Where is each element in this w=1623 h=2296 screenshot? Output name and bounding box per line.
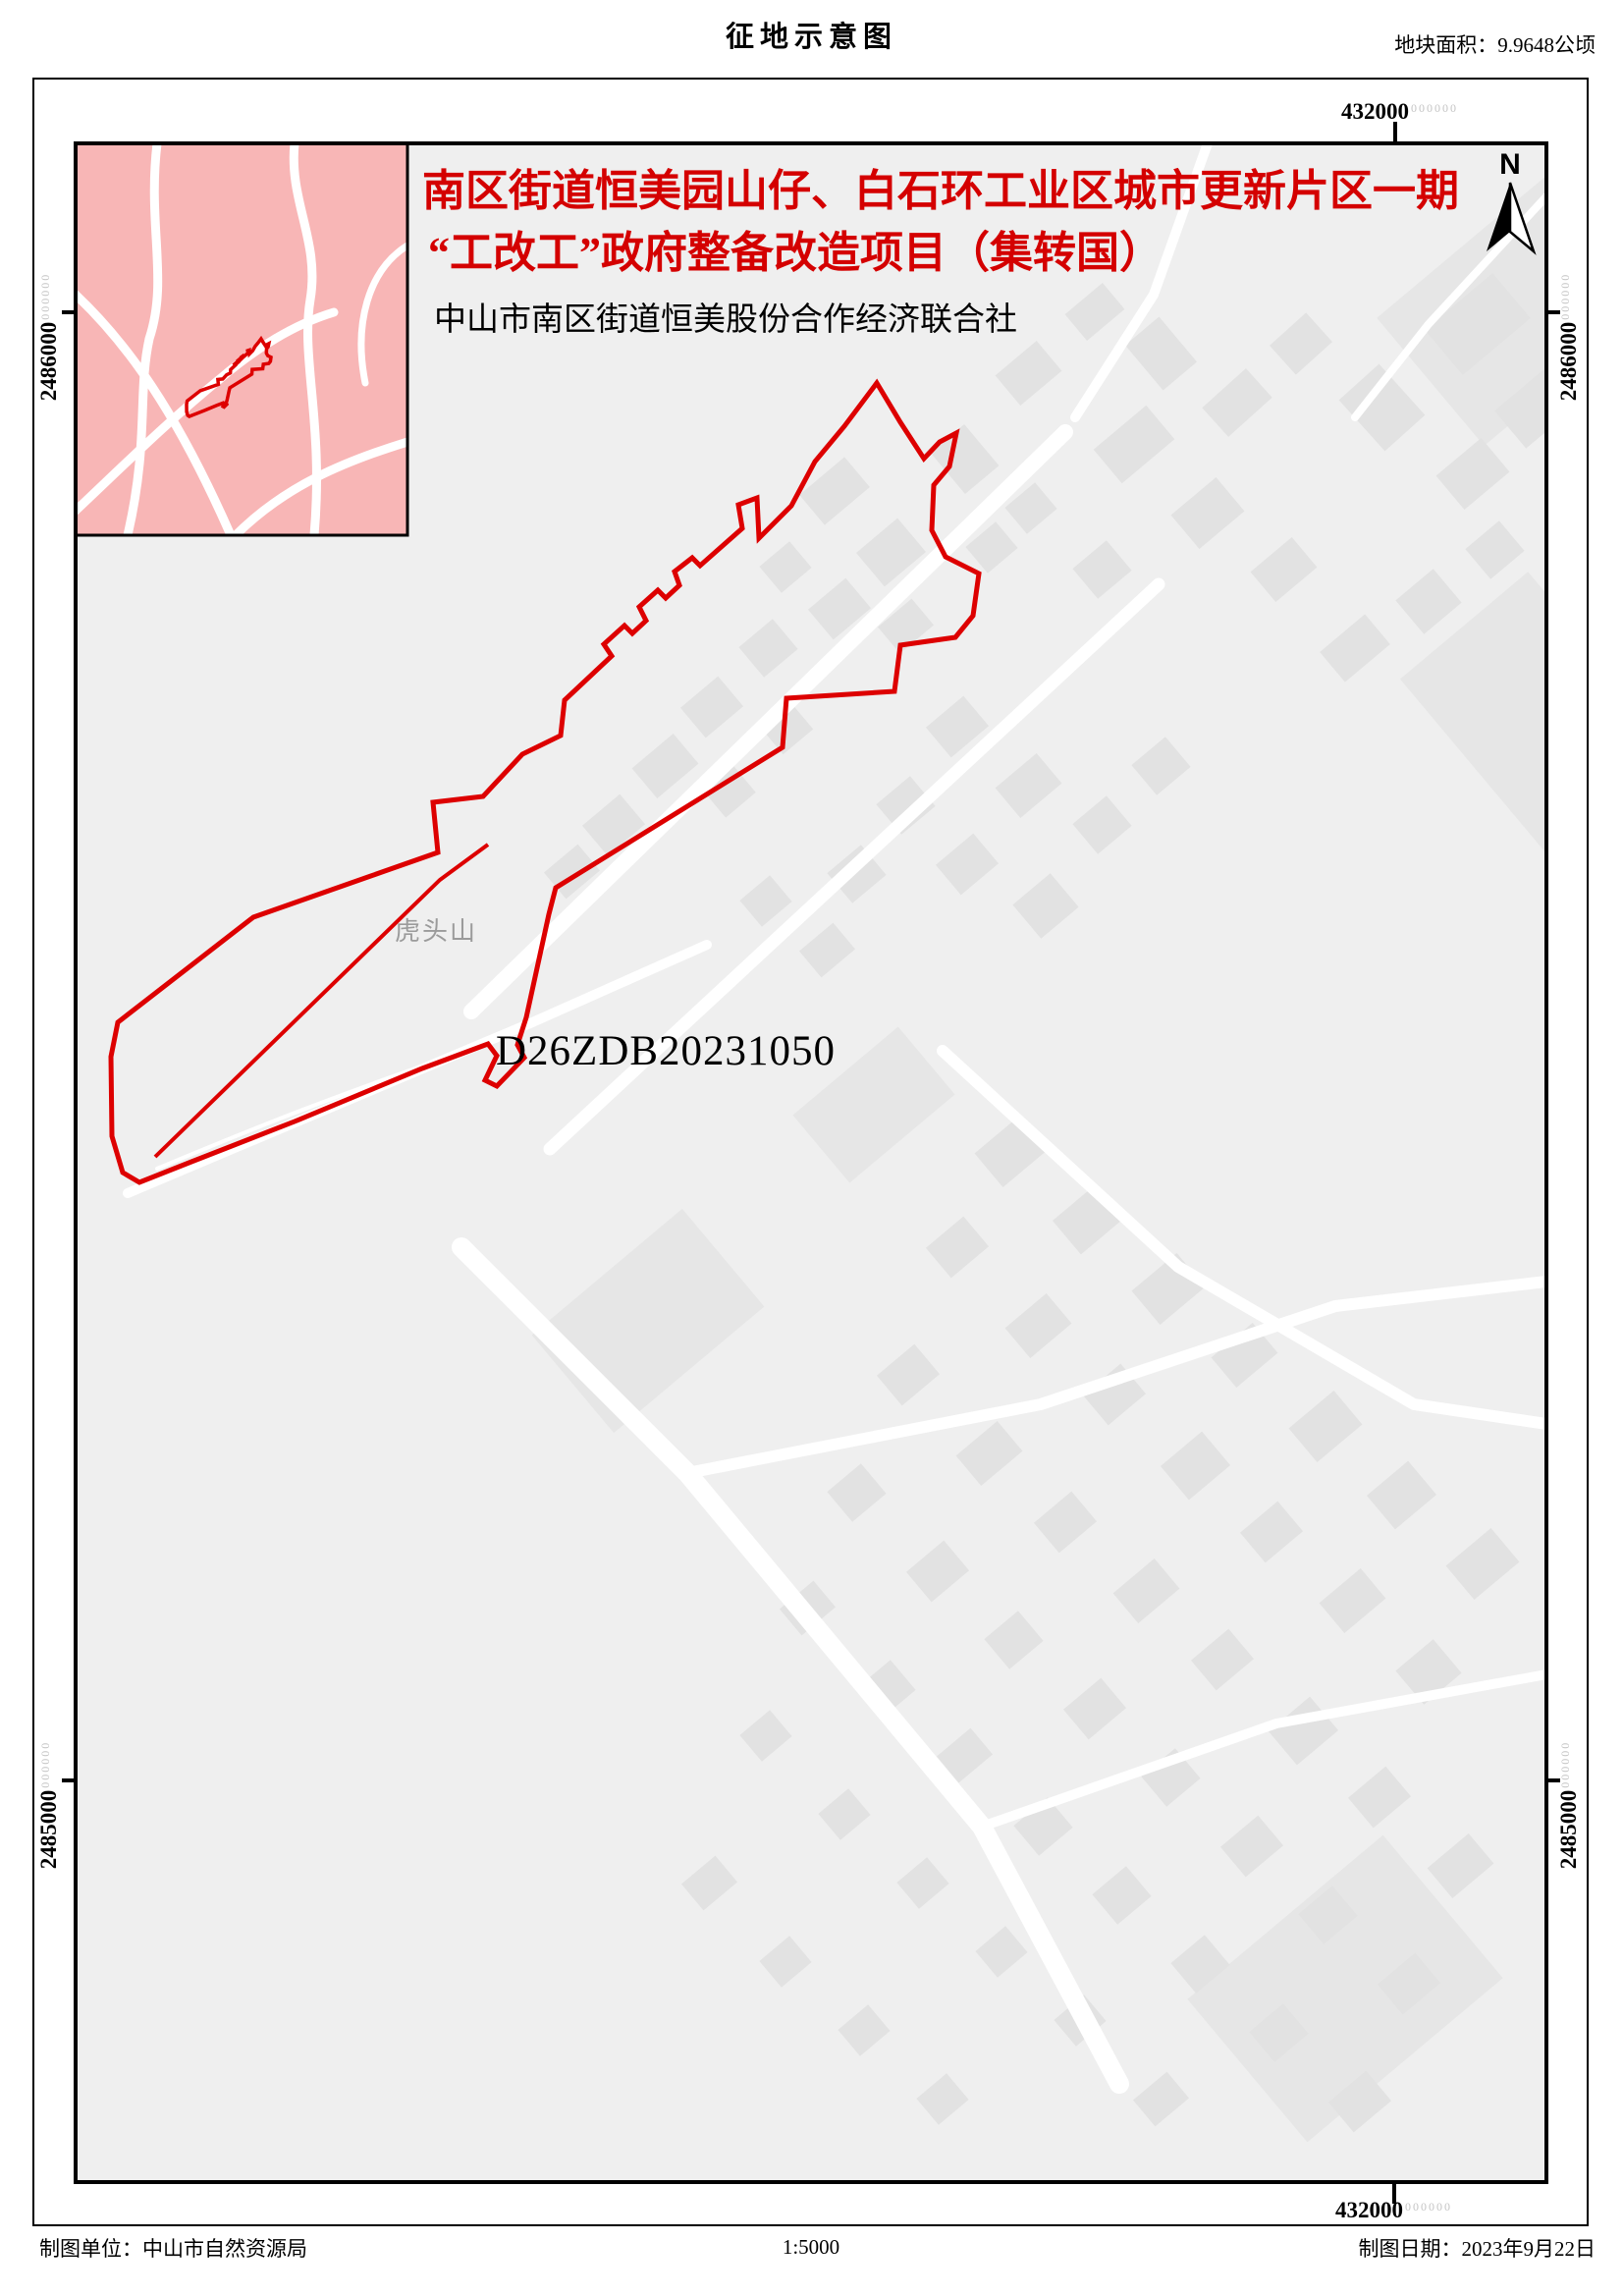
grid-label-top: 432000000000: [1341, 99, 1458, 125]
footer-scale: 1:5000: [783, 2235, 839, 2260]
grid-label-left-lower: 2485000000000: [36, 1741, 62, 1870]
parcel-code-label: D26ZDB20231050: [496, 1027, 836, 1075]
organization-name: 中山市南区街道恒美股份合作经济联合社: [434, 293, 1017, 340]
inset-map: [76, 143, 407, 535]
grid-label-right-upper: 2486000000000: [1556, 273, 1582, 402]
footer-date: 制图日期：2023年9月22日: [1359, 2233, 1596, 2263]
grid-label-left-upper: 2486000000000: [36, 273, 62, 402]
north-arrow-label: N: [1499, 148, 1521, 182]
grid-label-bottom: 432000000000: [1335, 2198, 1452, 2223]
map-sheet: 征地示意图 地块面积：9.9648公顷 432000000000 4320000…: [0, 0, 1623, 2296]
basemap-layer: [76, 143, 1623, 2182]
project-title-line2: “工改工”政府整备改造项目（集转国）: [428, 232, 1163, 275]
project-title-line1: 南区街道恒美园山仔、白石环工业区城市更新片区一期: [422, 170, 1459, 213]
place-label-hutoushan: 虎头山: [395, 911, 477, 948]
footer-agency: 制图单位：中山市自然资源局: [39, 2233, 307, 2263]
map-canvas: [0, 0, 1623, 2296]
grid-label-right-lower: 2485000000000: [1556, 1741, 1582, 1870]
